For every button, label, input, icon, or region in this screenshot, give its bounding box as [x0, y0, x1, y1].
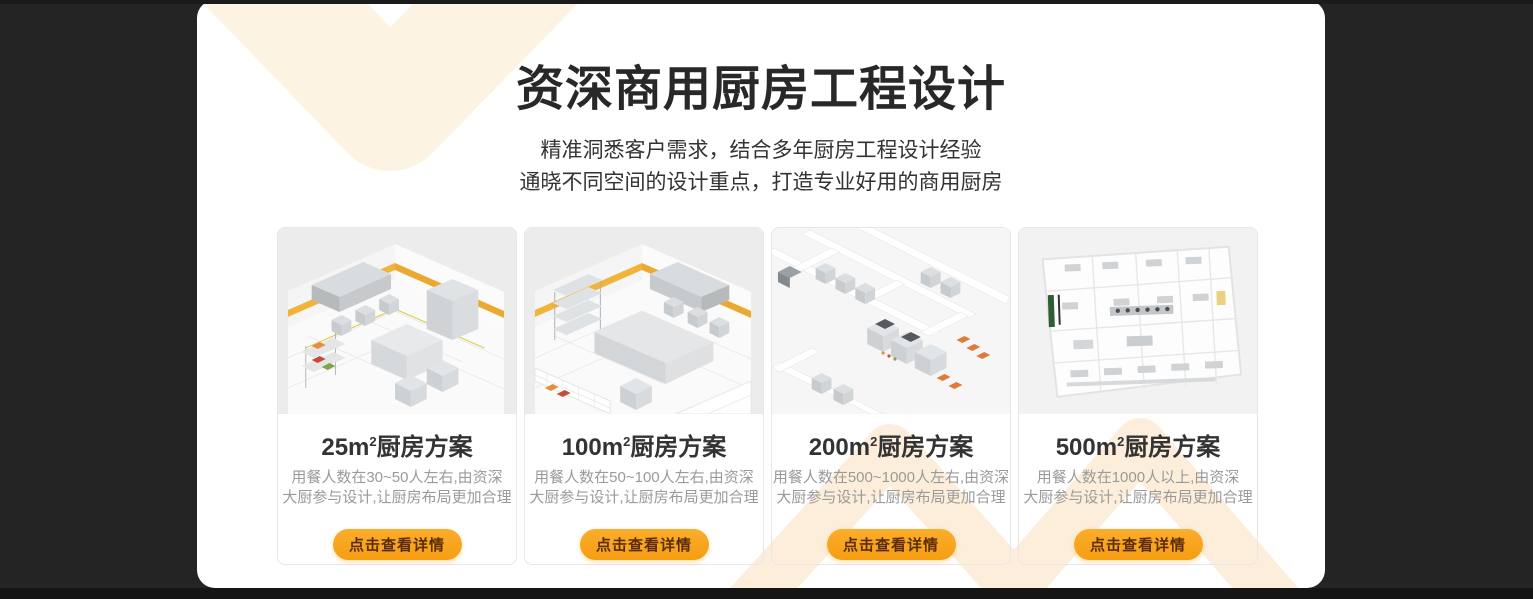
bottom-dark-strip — [0, 588, 1533, 599]
card-name-suffix: 厨房方案 — [377, 434, 473, 461]
card-description: 用餐人数在30~50人左右,由资深 大厨参与设计,让厨房布局更加合理 — [278, 468, 516, 508]
card-area-sup: 2 — [369, 434, 376, 449]
card-name-suffix: 厨房方案 — [630, 434, 726, 461]
plan-card-200[interactable]: 200m2厨房方案 用餐人数在500~1000人左右,由资深 大厨参与设计,让厨… — [771, 227, 1011, 565]
card-title: 25m2厨房方案 — [278, 427, 516, 462]
kitchen-render-100-image — [525, 228, 763, 414]
section-title: 资深商用厨房工程设计 — [197, 0, 1325, 119]
subtitle-line-2: 通晓不同空间的设计重点，打造专业好用的商用厨房 — [197, 167, 1325, 199]
plan-card-100[interactable]: 100m2厨房方案 用餐人数在50~100人左右,由资深 大厨参与设计,让厨房布… — [524, 227, 764, 565]
card-name-suffix: 厨房方案 — [1124, 434, 1220, 461]
card-desc-line-1: 用餐人数在500~1000人左右,由资深 — [772, 468, 1010, 488]
card-desc-line-1: 用餐人数在50~100人左右,由资深 — [525, 468, 763, 488]
kitchen-render-500-image — [1019, 228, 1257, 414]
kitchen-render-200-image — [772, 228, 1010, 414]
view-details-button[interactable]: 点击查看详情 — [1074, 529, 1203, 560]
card-description: 用餐人数在500~1000人左右,由资深 大厨参与设计,让厨房布局更加合理 — [772, 468, 1010, 508]
card-desc-line-2: 大厨参与设计,让厨房布局更加合理 — [772, 488, 1010, 508]
card-description: 用餐人数在50~100人左右,由资深 大厨参与设计,让厨房布局更加合理 — [525, 468, 763, 508]
card-desc-line-2: 大厨参与设计,让厨房布局更加合理 — [525, 488, 763, 508]
card-title: 200m2厨房方案 — [772, 427, 1010, 462]
section-subtitle: 精准洞悉客户需求，结合多年厨房工程设计经验 通晓不同空间的设计重点，打造专业好用… — [197, 135, 1325, 199]
view-details-button[interactable]: 点击查看详情 — [333, 529, 462, 560]
kitchen-500-illustration — [1019, 228, 1257, 414]
content-panel: 资深商用厨房工程设计 精准洞悉客户需求，结合多年厨房工程设计经验 通晓不同空间的… — [197, 0, 1325, 588]
card-area: 500m — [1056, 434, 1117, 461]
card-desc-line-1: 用餐人数在30~50人左右,由资深 — [278, 468, 516, 488]
kitchen-render-25-image — [278, 228, 516, 414]
kitchen-25-illustration — [278, 228, 516, 414]
kitchen-100-illustration — [525, 228, 763, 414]
top-dark-strip — [0, 0, 1533, 4]
card-desc-line-2: 大厨参与设计,让厨房布局更加合理 — [1019, 488, 1257, 508]
card-name-suffix: 厨房方案 — [877, 434, 973, 461]
card-description: 用餐人数在1000人以上,由资深 大厨参与设计,让厨房布局更加合理 — [1019, 468, 1257, 508]
page-background: { "section": { "title": "资深商用厨房工程设计", "s… — [0, 0, 1533, 599]
card-area: 100m — [562, 434, 623, 461]
view-details-button[interactable]: 点击查看详情 — [580, 529, 709, 560]
card-desc-line-1: 用餐人数在1000人以上,由资深 — [1019, 468, 1257, 488]
plan-card-25[interactable]: 25m2厨房方案 用餐人数在30~50人左右,由资深 大厨参与设计,让厨房布局更… — [277, 227, 517, 565]
card-desc-line-2: 大厨参与设计,让厨房布局更加合理 — [278, 488, 516, 508]
plan-card-500[interactable]: 500m2厨房方案 用餐人数在1000人以上,由资深 大厨参与设计,让厨房布局更… — [1018, 227, 1258, 565]
view-details-button[interactable]: 点击查看详情 — [827, 529, 956, 560]
card-area: 200m — [809, 434, 870, 461]
kitchen-200-illustration — [772, 228, 1010, 414]
subtitle-line-1: 精准洞悉客户需求，结合多年厨房工程设计经验 — [197, 135, 1325, 167]
card-title: 500m2厨房方案 — [1019, 427, 1257, 462]
plan-cards-row: 25m2厨房方案 用餐人数在30~50人左右,由资深 大厨参与设计,让厨房布局更… — [277, 227, 1258, 565]
card-title: 100m2厨房方案 — [525, 427, 763, 462]
card-area: 25m — [321, 434, 369, 461]
